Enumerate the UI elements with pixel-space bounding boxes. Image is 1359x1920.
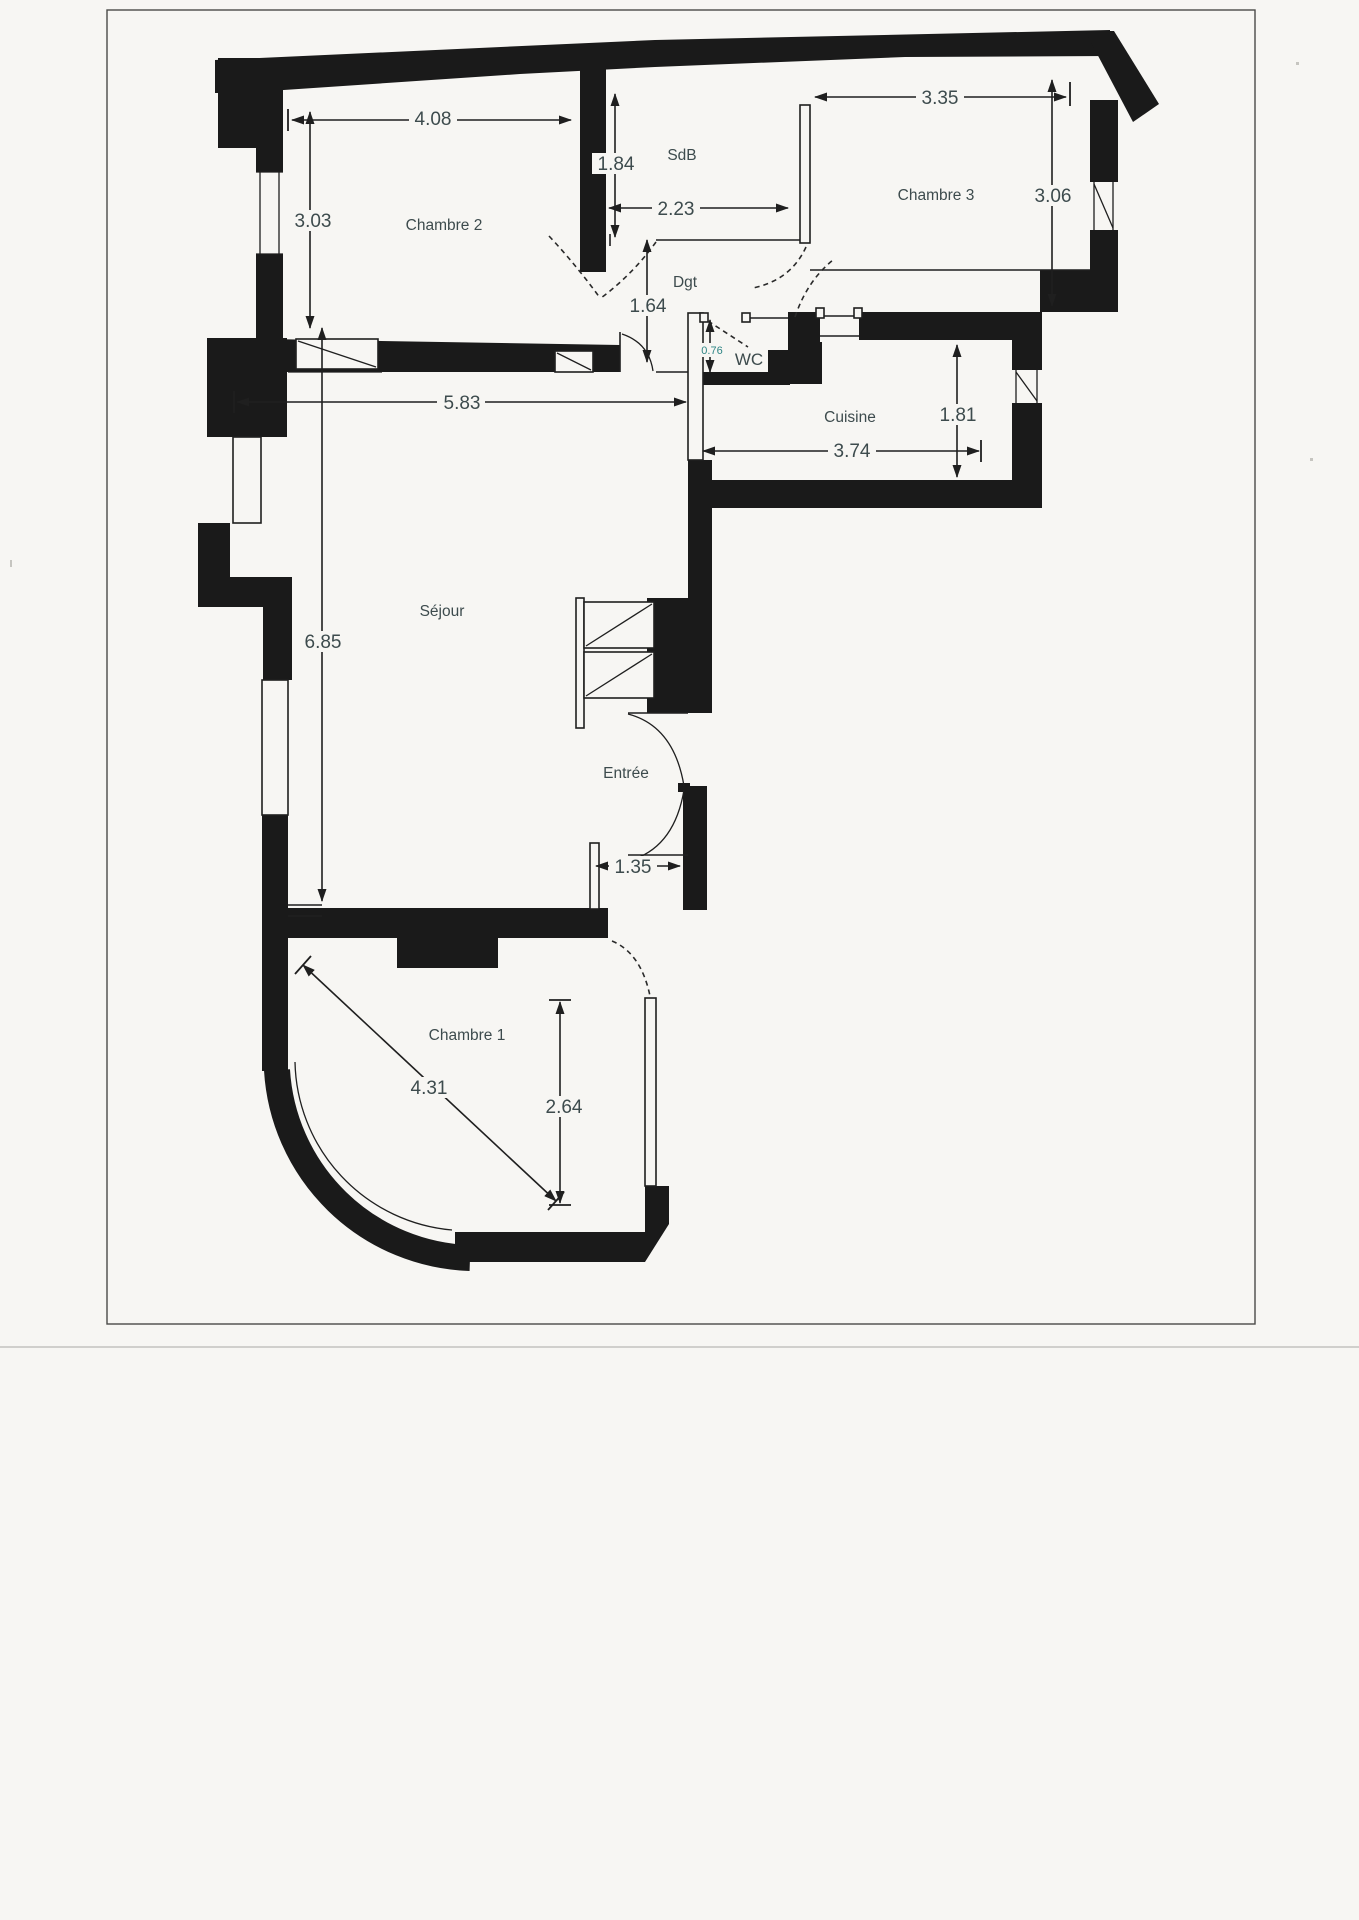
door-jamb [700, 313, 708, 322]
window-icon [288, 339, 382, 372]
dimension-sejour-width: 5.83 [234, 391, 686, 414]
window-icon [555, 351, 593, 372]
wall [647, 598, 712, 713]
door-swing-icon-chambre1 [612, 941, 650, 996]
dimension-sdb-width: 2.23 [609, 198, 788, 220]
wall [1090, 230, 1118, 276]
dim-label-sdb-width: 2.23 [658, 199, 695, 220]
room-label-cuisine: Cuisine [824, 409, 876, 426]
wall [288, 908, 608, 938]
door-jamb [854, 308, 862, 318]
room-label-sdb: SdB [667, 147, 696, 164]
door-jamb [742, 313, 750, 322]
wall [256, 254, 283, 338]
dimension-chambre1-diagonal: 4.31 [295, 956, 564, 1210]
wall [700, 480, 1042, 508]
room-label-chambre1: Chambre 1 [429, 1027, 506, 1044]
dimension-cuisine-width: 3.74 [703, 440, 981, 462]
dimension-cuisine-height: 1.81 [934, 345, 982, 477]
entree-west-wall [590, 843, 599, 909]
dim-label-dgt-height: 1.64 [630, 296, 667, 317]
chambre3-west-wall [800, 105, 810, 243]
dim-label-wc-width: 0.76 [701, 345, 722, 357]
dim-label-sejour-height: 6.85 [305, 632, 342, 653]
wall [256, 88, 283, 172]
dim-label-cuisine-width: 3.74 [834, 441, 871, 462]
dim-label-chambre1-diagonal: 4.31 [411, 1078, 448, 1099]
sejour-west-wall [233, 437, 261, 523]
dim-label-chambre2-width: 4.08 [415, 109, 452, 130]
wall [1012, 403, 1042, 485]
sejour-west-wall [262, 680, 288, 815]
room-label-chambre3: Chambre 3 [898, 187, 975, 204]
room-label-sejour: Séjour [420, 603, 465, 620]
cuisine-door-opening [820, 310, 859, 342]
dimension-entree-width: 1.35 [596, 856, 680, 878]
wall [645, 1186, 669, 1262]
window-icon [1010, 370, 1044, 403]
dim-label-cuisine-height: 1.81 [940, 405, 977, 426]
partition-dgt-wc [688, 313, 703, 460]
floor-plan-drawing: 4.08 3.03 1.84 2.23 3.35 3.06 [0, 0, 1359, 1920]
wall [1090, 100, 1118, 182]
dimension-chambre3-width: 3.35 [815, 82, 1070, 109]
dimension-chambre1-height: 2.64 [540, 1000, 588, 1205]
wall [198, 523, 292, 680]
wall [455, 1232, 645, 1262]
window-icon [1086, 182, 1120, 230]
dim-label-sejour-width: 5.83 [444, 393, 481, 414]
wall [1012, 340, 1042, 370]
dim-label-chambre2-height: 3.03 [295, 211, 332, 232]
scan-speck [1296, 62, 1299, 65]
room-label-chambre2: Chambre 2 [406, 217, 483, 234]
scan-speck [10, 560, 12, 567]
dim-label-entree-width: 1.35 [615, 857, 652, 878]
scan-speck [1310, 458, 1313, 461]
wall [218, 58, 260, 148]
dimension-chambre2-height: 3.03 [287, 112, 335, 328]
wall [655, 30, 1110, 67]
closet-icon [584, 602, 654, 698]
room-label-wc: WC [735, 350, 763, 369]
closet-front-panel [576, 598, 584, 728]
dimension-sejour-height: 6.85 [299, 328, 347, 901]
dim-label-sdb-height: 1.84 [598, 154, 635, 175]
wall [397, 938, 498, 968]
dim-label-chambre3-height: 3.06 [1035, 186, 1072, 207]
room-label-dgt: Dgt [673, 274, 698, 291]
dim-label-chambre1-height: 2.64 [546, 1097, 583, 1118]
dimension-chambre2-width: 4.08 [288, 108, 571, 131]
dimension-dgt-height: 1.64 [624, 240, 672, 362]
door-swing-icon-cuisine [795, 260, 833, 317]
dim-label-chambre3-width: 3.35 [922, 88, 959, 109]
wall [700, 372, 790, 385]
room-label-entree: Entrée [603, 765, 649, 782]
wall [788, 312, 822, 384]
wall [683, 786, 707, 910]
chambre1-east-wall [645, 998, 656, 1186]
wall [262, 815, 288, 1071]
wall [857, 312, 1042, 340]
door-jamb [816, 308, 824, 318]
door-swing-icon-sejour [620, 332, 653, 372]
window-icon [254, 172, 285, 254]
scanned-floor-plan-page: 4.08 3.03 1.84 2.23 3.35 3.06 [0, 0, 1359, 1920]
door-swing-icon-chambre3 [753, 247, 806, 288]
